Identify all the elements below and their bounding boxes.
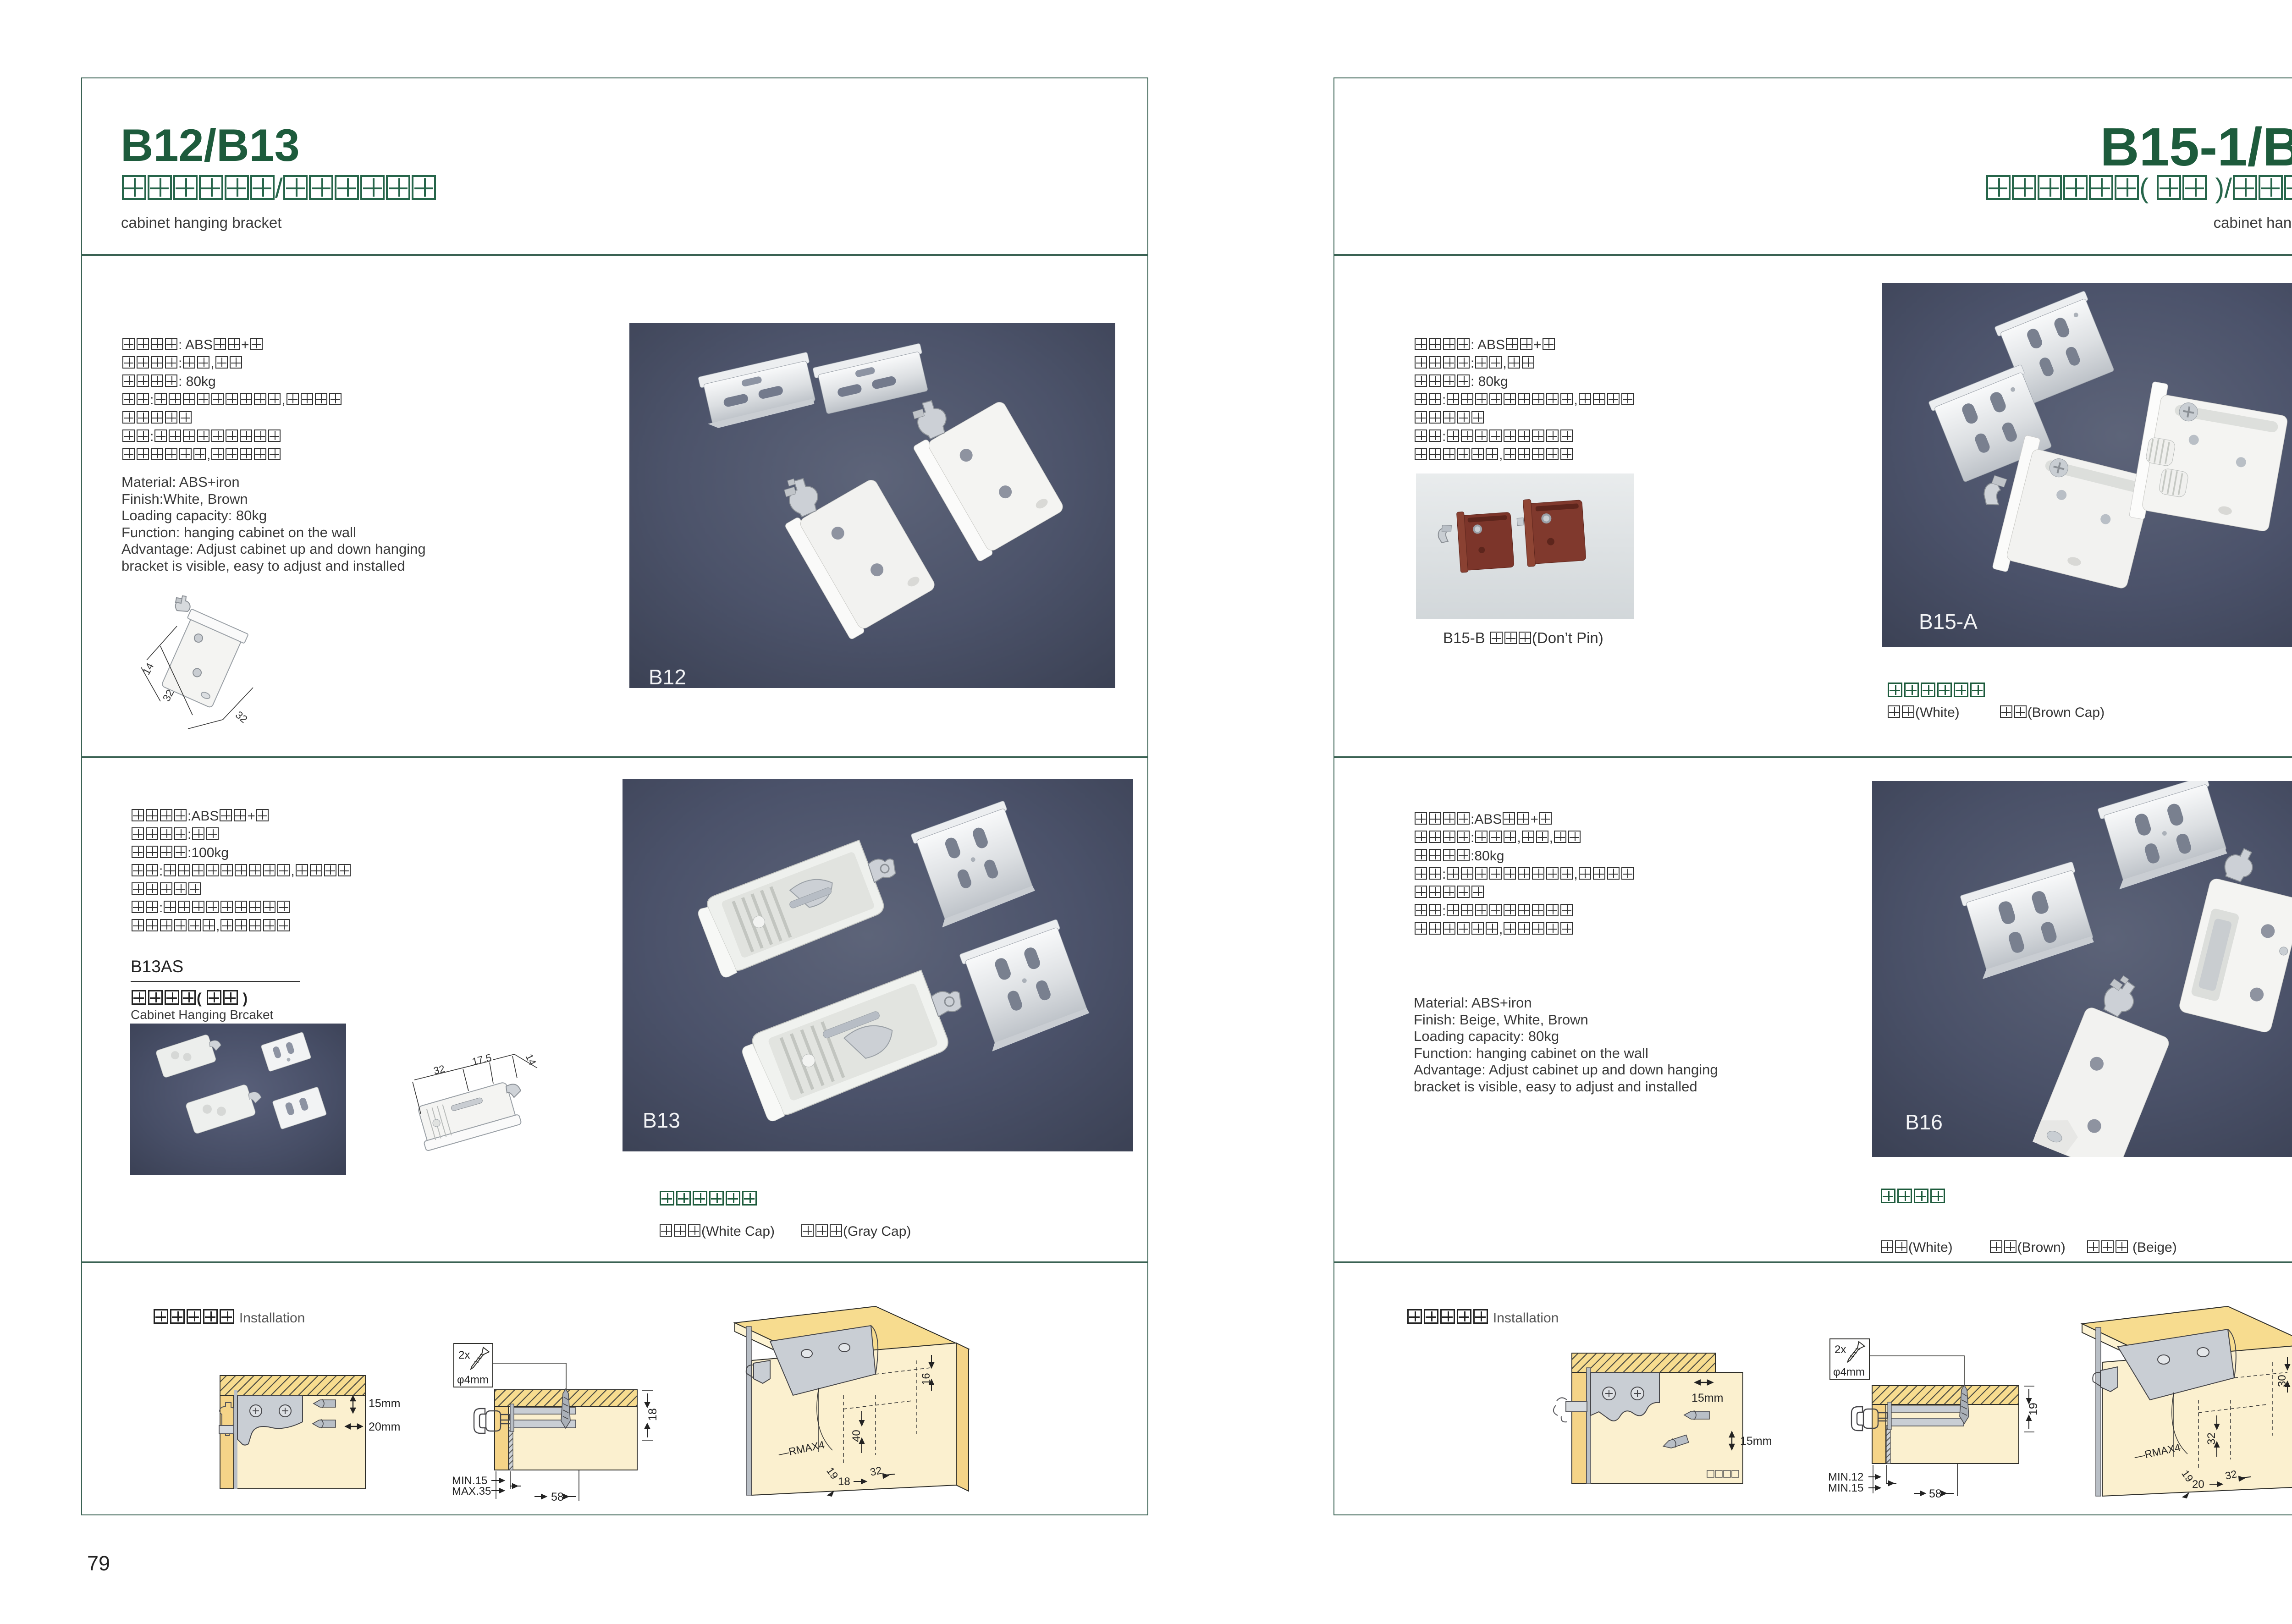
svg-text:30: 30 (2276, 1375, 2288, 1387)
svg-text:14: 14 (523, 1052, 539, 1067)
svg-text:15mm: 15mm (1740, 1435, 1772, 1448)
svg-text:20: 20 (2192, 1478, 2204, 1491)
svg-text:MIN.15: MIN.15 (1828, 1482, 1863, 1494)
svg-text:32: 32 (233, 709, 250, 725)
svg-text:MAX.35: MAX.35 (452, 1485, 491, 1497)
svg-text:B13: B13 (643, 1108, 680, 1132)
svg-text:18: 18 (838, 1475, 850, 1488)
svg-text:15mm: 15mm (1691, 1392, 1723, 1404)
svg-text:B12: B12 (649, 665, 686, 688)
svg-text:32: 32 (869, 1464, 883, 1478)
svg-text:B16: B16 (1905, 1110, 1943, 1134)
svg-text:32: 32 (2205, 1432, 2218, 1445)
svg-text:B15-A: B15-A (1919, 610, 1978, 633)
svg-text:58: 58 (551, 1491, 564, 1503)
svg-text:2x: 2x (1835, 1343, 1846, 1356)
svg-text:16: 16 (920, 1373, 932, 1385)
svg-text:32: 32 (432, 1063, 446, 1077)
svg-text:17.5: 17.5 (471, 1051, 493, 1068)
svg-text:MIN.12: MIN.12 (1828, 1471, 1863, 1483)
svg-text:20mm: 20mm (369, 1420, 400, 1433)
svg-text:40: 40 (850, 1430, 863, 1442)
svg-text:18: 18 (646, 1408, 659, 1421)
svg-text:32: 32 (2224, 1468, 2238, 1482)
svg-text:58: 58 (1929, 1487, 1942, 1500)
svg-text:19: 19 (2027, 1403, 2040, 1415)
svg-text:14: 14 (140, 661, 156, 677)
svg-text:15mm: 15mm (369, 1397, 400, 1410)
svg-text:φ4mm: φ4mm (1833, 1366, 1865, 1378)
svg-text:φ4mm: φ4mm (457, 1374, 489, 1386)
svg-text:2x: 2x (458, 1349, 470, 1361)
